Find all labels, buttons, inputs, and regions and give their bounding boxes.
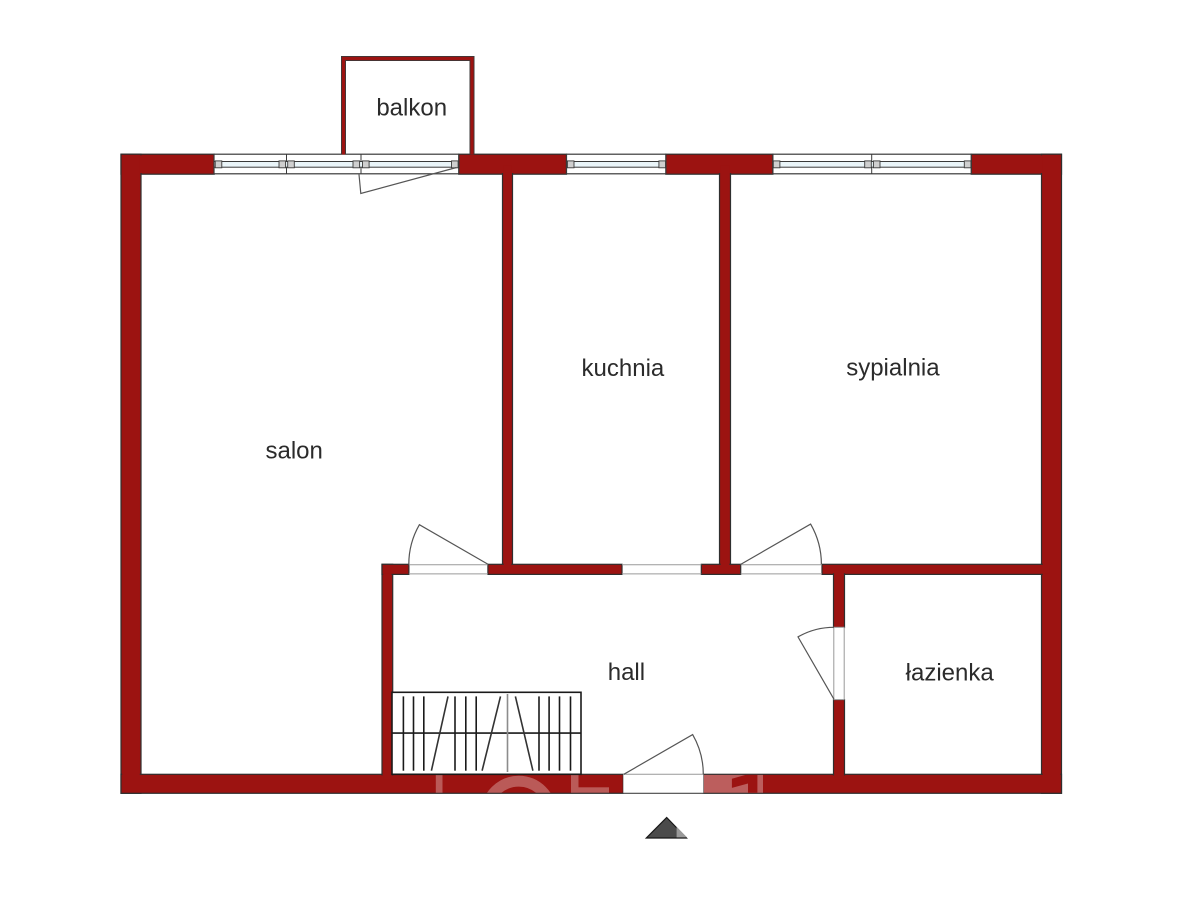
svg-text:salon: salon xyxy=(266,438,323,465)
svg-text:hall: hall xyxy=(608,659,645,686)
svg-text:kuchnia: kuchnia xyxy=(582,355,665,382)
svg-text:łazienka: łazienka xyxy=(906,660,995,687)
svg-text:sypialnia: sypialnia xyxy=(846,355,940,382)
svg-text:balkon: balkon xyxy=(376,95,447,122)
